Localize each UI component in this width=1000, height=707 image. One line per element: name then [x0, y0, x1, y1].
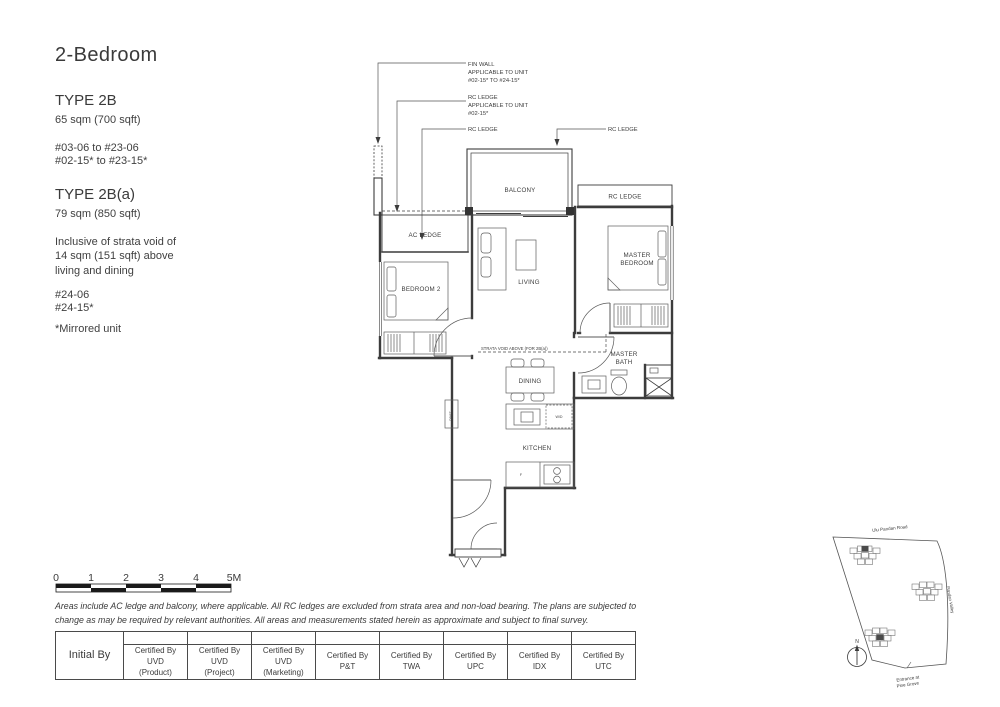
scale-bar-labels: 0 1 2 3 4 5M: [53, 572, 241, 584]
callouts: FIN WALL APPLICABLE TO UNIT #02-15* TO #…: [468, 62, 638, 133]
signature-space: [380, 632, 444, 645]
cert-line: (Product): [125, 668, 186, 679]
ac-condenser-ledge: [646, 378, 672, 396]
cert-line: UVD: [125, 657, 186, 668]
dbst-label: DB/ST: [449, 411, 453, 420]
signature-space: [444, 632, 508, 645]
mirrored-unit-note: *Mirrored unit: [55, 322, 121, 336]
signature-space: [316, 632, 380, 645]
room-label-living: LIVING: [518, 279, 540, 286]
scale-bar-segments: [56, 584, 231, 592]
signature-space: [508, 632, 572, 645]
rc-ledge-callout-right: RC LEDGE: [608, 127, 638, 133]
floor-plan-drawing: FIN WALL APPLICABLE TO UNIT #02-15* TO #…: [350, 55, 720, 570]
certified-by-pt: Certified By P&T: [316, 645, 380, 680]
signature-space: [124, 632, 188, 645]
cert-line: TWA: [381, 662, 442, 673]
certified-by-uvd-marketing: Certified By UVD (Marketing): [252, 645, 316, 680]
cert-line: Certified By: [381, 651, 442, 662]
cert-line: Certified By: [125, 646, 186, 657]
road-label-top: Ulu Pandan Road: [872, 524, 908, 533]
north-compass-icon: N: [848, 639, 867, 667]
cert-line: P&T: [317, 662, 378, 673]
unit-type-1-area: 65 sqm (700 sqft): [55, 113, 141, 127]
cert-line: UTC: [573, 662, 634, 673]
signature-space: [252, 632, 316, 645]
unit-type-2-name: TYPE 2B(a): [55, 186, 135, 203]
master-bedroom-furniture: [608, 226, 668, 327]
highlighted-unit-bottom: [877, 635, 884, 641]
cert-line: Certified By: [189, 646, 250, 657]
cert-line: Certified By: [573, 651, 634, 662]
disclaimer-text: Areas include AC ledge and balcony, wher…: [55, 600, 663, 627]
unit-type-2-stack-2: #24-15*: [55, 301, 94, 315]
entrance-door: [455, 549, 501, 567]
room-label-master-bedroom-1: MASTER: [624, 252, 651, 259]
rc-ledge-callout-left: RC LEDGE: [468, 127, 498, 133]
strata-void-label: STRATA VOID ABOVE (FOR 2B(a)): [481, 346, 548, 351]
certified-by-uvd-project: Certified By UVD (Project): [188, 645, 252, 680]
rc-ledge-unit-callout-line3: #02-15*: [468, 111, 489, 117]
cert-line: Certified By: [445, 651, 506, 662]
room-label-balcony: BALCONY: [505, 187, 536, 194]
signature-space: [188, 632, 252, 645]
page-title: 2-Bedroom: [55, 44, 158, 67]
rc-ledge-unit-callout-line2: APPLICABLE TO UNIT: [468, 103, 528, 109]
room-label-master-bath-2: BATH: [616, 359, 633, 366]
room-label-master-bath-1: MASTER: [611, 351, 638, 358]
room-label-kitchen: KITCHEN: [523, 445, 552, 452]
unit-type-1-name: TYPE 2B: [55, 92, 117, 109]
cert-line: UVD: [189, 657, 250, 668]
rc-ledge-unit-callout-line1: RC LEDGE: [468, 95, 498, 101]
scale-label-1: 1: [88, 572, 94, 584]
certified-by-twa: Certified By TWA: [380, 645, 444, 680]
scale-label-5m: 5M: [227, 572, 242, 584]
strata-void-boundary: STRATA VOID ABOVE (FOR 2B(a)): [478, 332, 606, 352]
cert-line: UPC: [445, 662, 506, 673]
bedroom2-furniture: [384, 262, 448, 354]
scale-label-4: 4: [193, 572, 199, 584]
fin-wall-callout-line3: #02-15* TO #24-15*: [468, 78, 520, 84]
room-label-master-bedroom-2: BEDROOM: [620, 260, 653, 267]
cert-line: Certified By: [317, 651, 378, 662]
floor-plan-page: 2-Bedroom TYPE 2B 65 sqm (700 sqft) #03-…: [0, 0, 1000, 707]
scale-bar: 0 1 2 3 4 5M: [50, 572, 245, 600]
site-boundary: [833, 537, 948, 668]
approval-table: Initial By Certified By UVD (Product) Ce…: [55, 631, 636, 680]
certified-by-uvd-product: Certified By UVD (Product): [124, 645, 188, 680]
doors: [434, 303, 614, 549]
room-label-ac-ledge: AC LEDGE: [409, 232, 442, 239]
signature-space: [572, 632, 636, 645]
unit-type-1-stack-2: #02-15* to #23-15*: [55, 154, 147, 168]
cert-line: UVD: [253, 657, 314, 668]
cert-line: IDX: [509, 662, 570, 673]
room-label-dining: DINING: [519, 378, 542, 385]
scale-label-2: 2: [123, 572, 129, 584]
unit-type-2-note: Inclusive of strata void of 14 sqm (151 …: [55, 235, 183, 278]
cert-line: (Marketing): [253, 668, 314, 679]
cert-line: (Project): [189, 668, 250, 679]
room-label-rc-ledge: RC LEDGE: [608, 194, 641, 201]
certified-by-utc: Certified By UTC: [572, 645, 636, 680]
cert-line: Certified By: [253, 646, 314, 657]
scale-label-0: 0: [53, 572, 59, 584]
site-map: Ulu Pandan Road Pandan Valley Entrance a…: [815, 512, 1000, 707]
compass-n-label: N: [855, 639, 859, 645]
initial-by-cell: Initial By: [56, 632, 124, 680]
master-bath-fixtures: [582, 368, 658, 395]
highlighted-unit-top: [862, 546, 869, 552]
certified-by-idx: Certified By IDX: [508, 645, 572, 680]
washer-dryer-label: W/D: [556, 415, 563, 419]
fin-wall: [374, 146, 382, 215]
cert-line: Certified By: [509, 651, 570, 662]
scale-label-3: 3: [158, 572, 164, 584]
fin-wall-callout-line2: APPLICABLE TO UNIT: [468, 70, 528, 76]
site-map-building-cluster: [912, 582, 942, 601]
unit-type-2-area: 79 sqm (850 sqft): [55, 207, 141, 221]
certified-by-upc: Certified By UPC: [444, 645, 508, 680]
fin-wall-callout-line1: FIN WALL: [468, 62, 495, 68]
kitchen-fixtures: [445, 400, 574, 487]
room-label-bedroom2: BEDROOM 2: [402, 286, 441, 293]
fridge-label: F: [520, 473, 523, 477]
